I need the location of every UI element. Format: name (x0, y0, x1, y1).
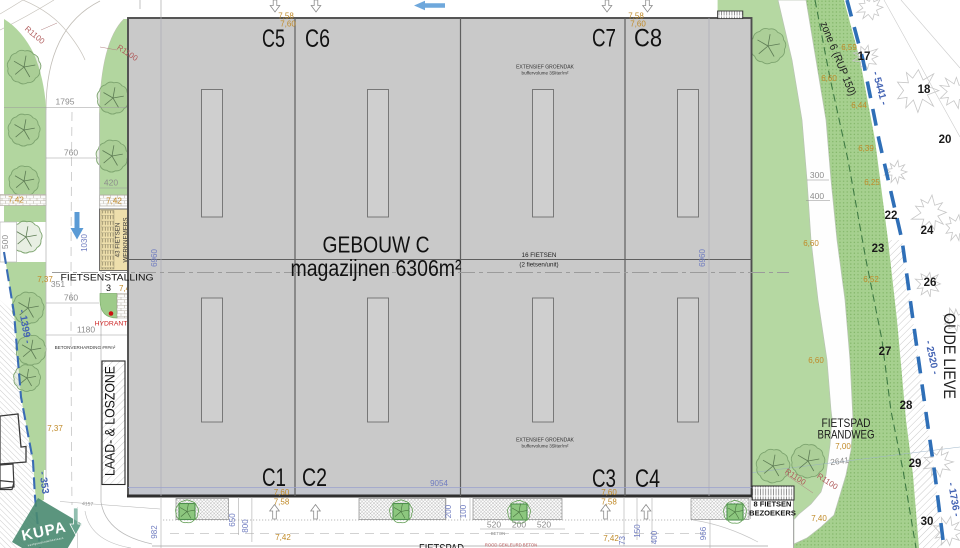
svg-text:6,52: 6,52 (863, 275, 879, 284)
svg-text:43 FIETSEN: 43 FIETSEN (115, 223, 122, 258)
svg-text:760: 760 (64, 148, 78, 158)
svg-text:7,42: 7,42 (275, 533, 291, 542)
svg-text:200: 200 (512, 520, 526, 530)
svg-text:7,60: 7,60 (280, 20, 296, 29)
svg-text:6,44: 6,44 (851, 101, 867, 110)
svg-text:7,60: 7,60 (601, 488, 617, 497)
svg-text:7,00: 7,00 (835, 442, 851, 451)
svg-text:7,37: 7,37 (47, 424, 63, 433)
svg-text:6,59: 6,59 (841, 43, 857, 52)
svg-text:22: 22 (885, 210, 898, 222)
svg-text:LAAD- & LOSZONE: LAAD- & LOSZONE (103, 366, 118, 476)
svg-text:7,42: 7,42 (603, 534, 619, 543)
svg-text:GEBOUW C: GEBOUW C (323, 232, 430, 258)
svg-text:30: 30 (921, 516, 934, 528)
svg-text:buffervolume 35liter/m²: buffervolume 35liter/m² (522, 71, 569, 76)
svg-text:650: 650 (228, 513, 237, 527)
svg-text:26: 26 (924, 277, 937, 289)
svg-text:magazijnen 6306m²: magazijnen 6306m² (291, 255, 462, 281)
svg-text:BETON: BETON (491, 531, 505, 536)
svg-text:C2: C2 (302, 464, 327, 492)
svg-text:C6: C6 (305, 25, 330, 53)
svg-text:200: 200 (444, 504, 453, 518)
svg-text:100: 100 (459, 504, 468, 518)
svg-text:520: 520 (537, 520, 551, 530)
svg-text:BRANDWEG: BRANDWEG (818, 428, 875, 442)
svg-text:6,60: 6,60 (821, 74, 837, 83)
svg-text:500: 500 (0, 235, 10, 249)
svg-text:8 FIETSEN: 8 FIETSEN (754, 500, 792, 509)
svg-text:BETONVERHARDING ###m²: BETONVERHARDING ###m² (55, 345, 116, 350)
svg-text:27: 27 (879, 346, 892, 358)
svg-text:7,40: 7,40 (811, 514, 827, 523)
svg-text:6,39: 6,39 (858, 144, 874, 153)
svg-text:7,42: 7,42 (8, 196, 24, 205)
svg-text:28: 28 (900, 400, 913, 412)
svg-text:150: 150 (633, 524, 642, 538)
svg-text:24: 24 (921, 225, 934, 237)
svg-text:966: 966 (699, 526, 708, 540)
svg-text:20: 20 (939, 134, 952, 146)
svg-text:OUDE LIEVE: OUDE LIEVE (940, 313, 958, 399)
svg-text:300: 300 (810, 170, 824, 180)
svg-text:C8: C8 (634, 25, 662, 53)
svg-text:1180: 1180 (77, 325, 96, 335)
svg-text:400: 400 (650, 530, 659, 544)
svg-text:7,58: 7,58 (274, 498, 290, 507)
svg-text:C5: C5 (262, 25, 285, 53)
svg-text:17: 17 (858, 51, 871, 63)
svg-text:C7: C7 (592, 25, 616, 53)
svg-text:73: 73 (618, 536, 627, 545)
svg-text:HYDRANT: HYDRANT (95, 321, 128, 328)
svg-text:420: 420 (104, 178, 118, 188)
svg-text:3: 3 (106, 283, 111, 293)
svg-text:6,60: 6,60 (808, 356, 824, 365)
svg-text:1795: 1795 (56, 97, 75, 107)
svg-text:29: 29 (909, 458, 922, 470)
svg-text:ROOD GEKLEURD BETON: ROOD GEKLEURD BETON (485, 543, 537, 548)
svg-text:6,25: 6,25 (864, 178, 880, 187)
svg-text:760: 760 (64, 293, 78, 303)
svg-text:7,60: 7,60 (630, 20, 646, 29)
svg-text:6960: 6960 (698, 249, 707, 267)
svg-text:23: 23 (872, 243, 885, 255)
svg-text:FIETSENSTALLING: FIETSENSTALLING (61, 273, 154, 284)
svg-text:800: 800 (241, 519, 250, 533)
svg-text:(2 fietsen/unit): (2 fietsen/unit) (519, 262, 558, 269)
svg-text:buffervolume 35liter/m²: buffervolume 35liter/m² (522, 444, 569, 449)
svg-text:FIETSPAD: FIETSPAD (419, 544, 464, 548)
svg-text:7,42: 7,42 (106, 197, 122, 206)
svg-text:520: 520 (487, 520, 501, 530)
svg-text:BEZOEKERS: BEZOEKERS (749, 509, 796, 518)
svg-text:4157: 4157 (82, 501, 94, 508)
svg-text:7,58: 7,58 (601, 498, 617, 507)
svg-text:982: 982 (150, 525, 159, 539)
svg-text:6,60: 6,60 (803, 239, 819, 248)
svg-text:7,60: 7,60 (274, 488, 290, 497)
svg-text:18: 18 (918, 84, 931, 96)
svg-text:1030: 1030 (80, 234, 89, 252)
svg-text:C4: C4 (635, 465, 660, 493)
svg-text:400: 400 (810, 191, 824, 201)
svg-text:9054: 9054 (430, 479, 448, 488)
svg-text:16 FIETSEN: 16 FIETSEN (522, 252, 557, 259)
svg-text:6960: 6960 (150, 249, 159, 267)
